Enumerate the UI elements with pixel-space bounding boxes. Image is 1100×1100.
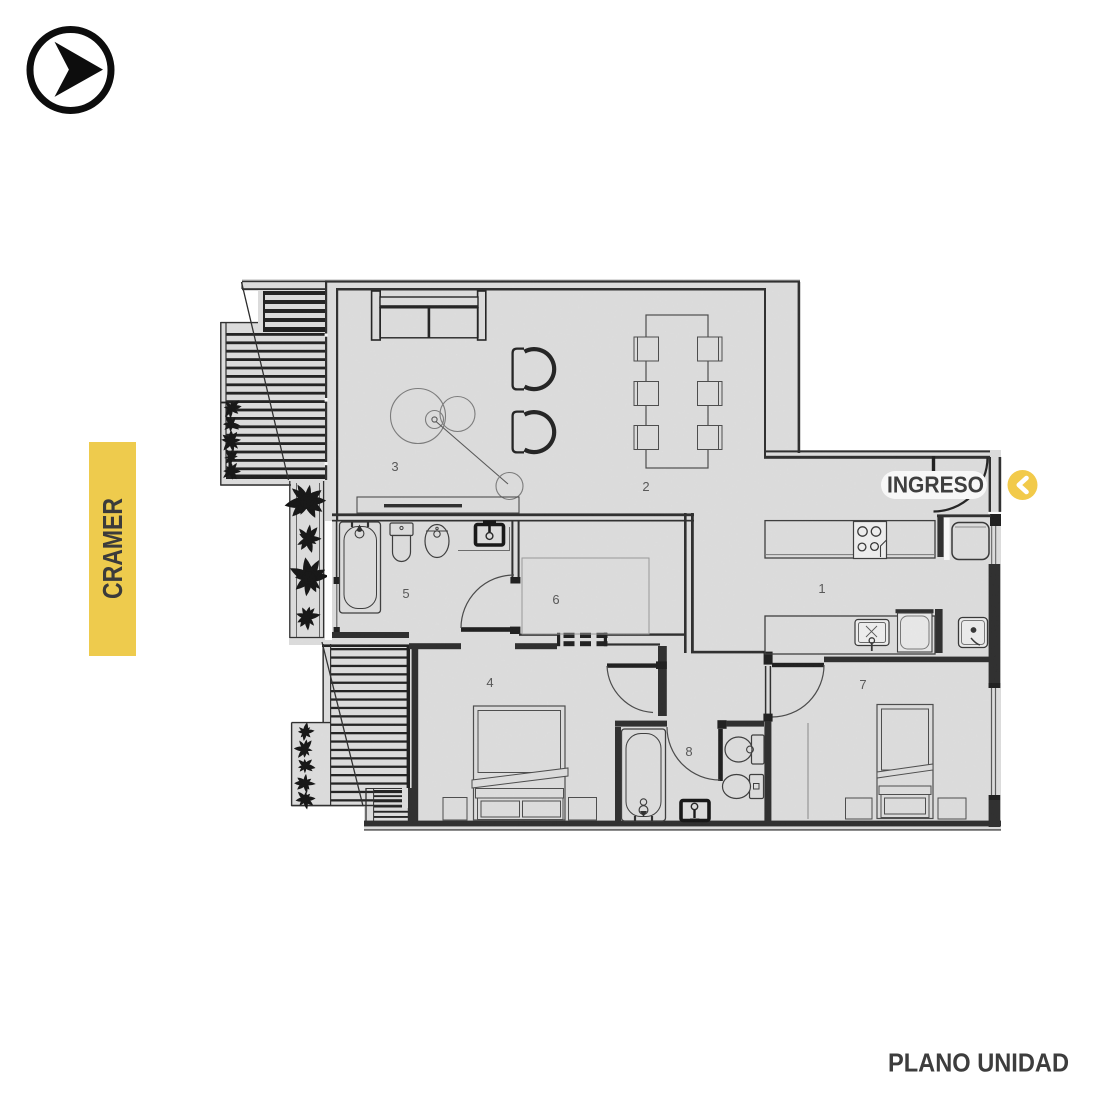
svg-text:PLANO UNIDAD: PLANO UNIDAD — [888, 1050, 1069, 1078]
svg-text:CRAMER: CRAMER — [97, 498, 128, 599]
